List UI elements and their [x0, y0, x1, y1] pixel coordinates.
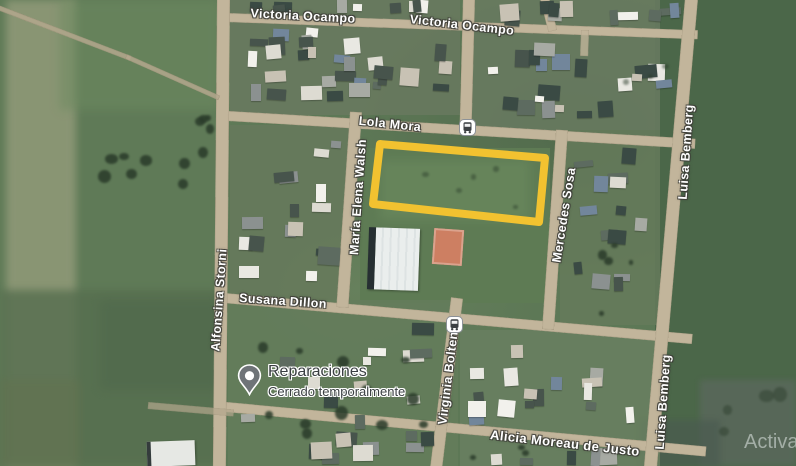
tree [759, 390, 774, 401]
building [499, 4, 519, 22]
building [311, 202, 330, 212]
building [610, 176, 627, 188]
bus-icon [446, 316, 463, 333]
building [502, 96, 518, 110]
building [306, 270, 317, 281]
building [344, 57, 355, 71]
building [511, 345, 523, 358]
tree [611, 243, 618, 248]
building [248, 235, 264, 251]
building [580, 205, 598, 216]
building [567, 451, 576, 465]
building [625, 406, 634, 423]
building [267, 88, 287, 101]
road-cross-stub [580, 30, 589, 56]
building [577, 111, 592, 118]
building [299, 37, 313, 48]
building [632, 74, 642, 82]
building [287, 222, 302, 237]
building [317, 247, 340, 266]
tree [179, 158, 190, 169]
building [409, 349, 431, 359]
building [488, 67, 498, 74]
tree [376, 420, 388, 430]
windows-activation-watermark: Activa [744, 431, 796, 454]
building [559, 1, 572, 17]
building [520, 458, 533, 465]
field-patch [100, 300, 220, 390]
building [669, 3, 679, 18]
building [368, 348, 386, 356]
building [239, 266, 259, 278]
field-patch [60, 0, 220, 110]
building [331, 141, 342, 149]
building [525, 401, 534, 409]
building [242, 217, 263, 229]
building [591, 274, 610, 291]
building [555, 105, 565, 113]
building [406, 431, 417, 441]
building [301, 85, 322, 99]
building [503, 367, 518, 386]
tree [206, 124, 214, 133]
building [621, 148, 636, 165]
building [316, 183, 326, 201]
tree [623, 79, 629, 85]
building [265, 70, 286, 83]
tree [407, 393, 419, 405]
building [534, 95, 544, 102]
building [400, 67, 420, 86]
building [335, 433, 352, 448]
building [469, 368, 484, 379]
tree [419, 421, 428, 428]
building [421, 432, 434, 446]
tree [178, 179, 187, 189]
building [251, 84, 261, 101]
building [586, 402, 596, 411]
field-building [147, 440, 196, 466]
building [349, 83, 370, 97]
tree [648, 74, 653, 79]
warehouse-building [367, 227, 420, 291]
tree [599, 311, 603, 316]
building [439, 61, 453, 74]
building [534, 43, 556, 57]
building [355, 415, 366, 429]
tree [598, 250, 606, 260]
tree [629, 260, 634, 264]
building [290, 204, 299, 217]
building [552, 54, 570, 70]
building [412, 322, 434, 335]
building [497, 399, 515, 417]
building [343, 37, 360, 54]
tree [302, 428, 312, 439]
building [310, 441, 332, 459]
building [516, 100, 534, 115]
building [648, 10, 661, 22]
building [575, 58, 588, 76]
building [390, 3, 401, 13]
tree [493, 166, 499, 171]
building [614, 277, 623, 291]
sports-court [432, 228, 464, 266]
building [616, 12, 638, 21]
building [635, 218, 647, 232]
building [241, 413, 255, 422]
building [610, 10, 619, 25]
building [616, 205, 627, 215]
tree [105, 154, 118, 164]
building [433, 83, 449, 91]
bus-stop-icon[interactable] [446, 316, 463, 333]
field-patch [0, 380, 80, 466]
building [313, 148, 329, 158]
building [353, 4, 362, 11]
tree [205, 115, 211, 120]
building [374, 65, 394, 79]
building [265, 44, 281, 60]
building [327, 91, 344, 102]
tree [723, 405, 732, 414]
building [353, 445, 373, 461]
building [574, 262, 584, 275]
building [468, 401, 486, 417]
building [307, 47, 315, 58]
poi-status: Cerrado temporalmente [268, 384, 405, 399]
map-pin-icon[interactable] [237, 364, 262, 401]
building [413, 0, 422, 12]
tree [265, 411, 273, 419]
building [549, 2, 560, 17]
building [551, 377, 563, 390]
tree [195, 117, 205, 126]
building [248, 51, 258, 67]
building [598, 100, 615, 117]
building [434, 43, 446, 61]
poi-name[interactable]: Reparaciones [268, 363, 367, 381]
field-patch [380, 160, 530, 220]
building [491, 454, 503, 466]
building [584, 383, 593, 401]
bus-stop-icon[interactable] [459, 119, 476, 136]
building [335, 71, 356, 81]
satellite-map[interactable]: Victoria Ocampo Victoria Ocampo Lola Mor… [0, 0, 796, 466]
tree [471, 174, 477, 180]
building [594, 176, 608, 192]
bus-icon [459, 119, 476, 136]
building [523, 388, 536, 399]
